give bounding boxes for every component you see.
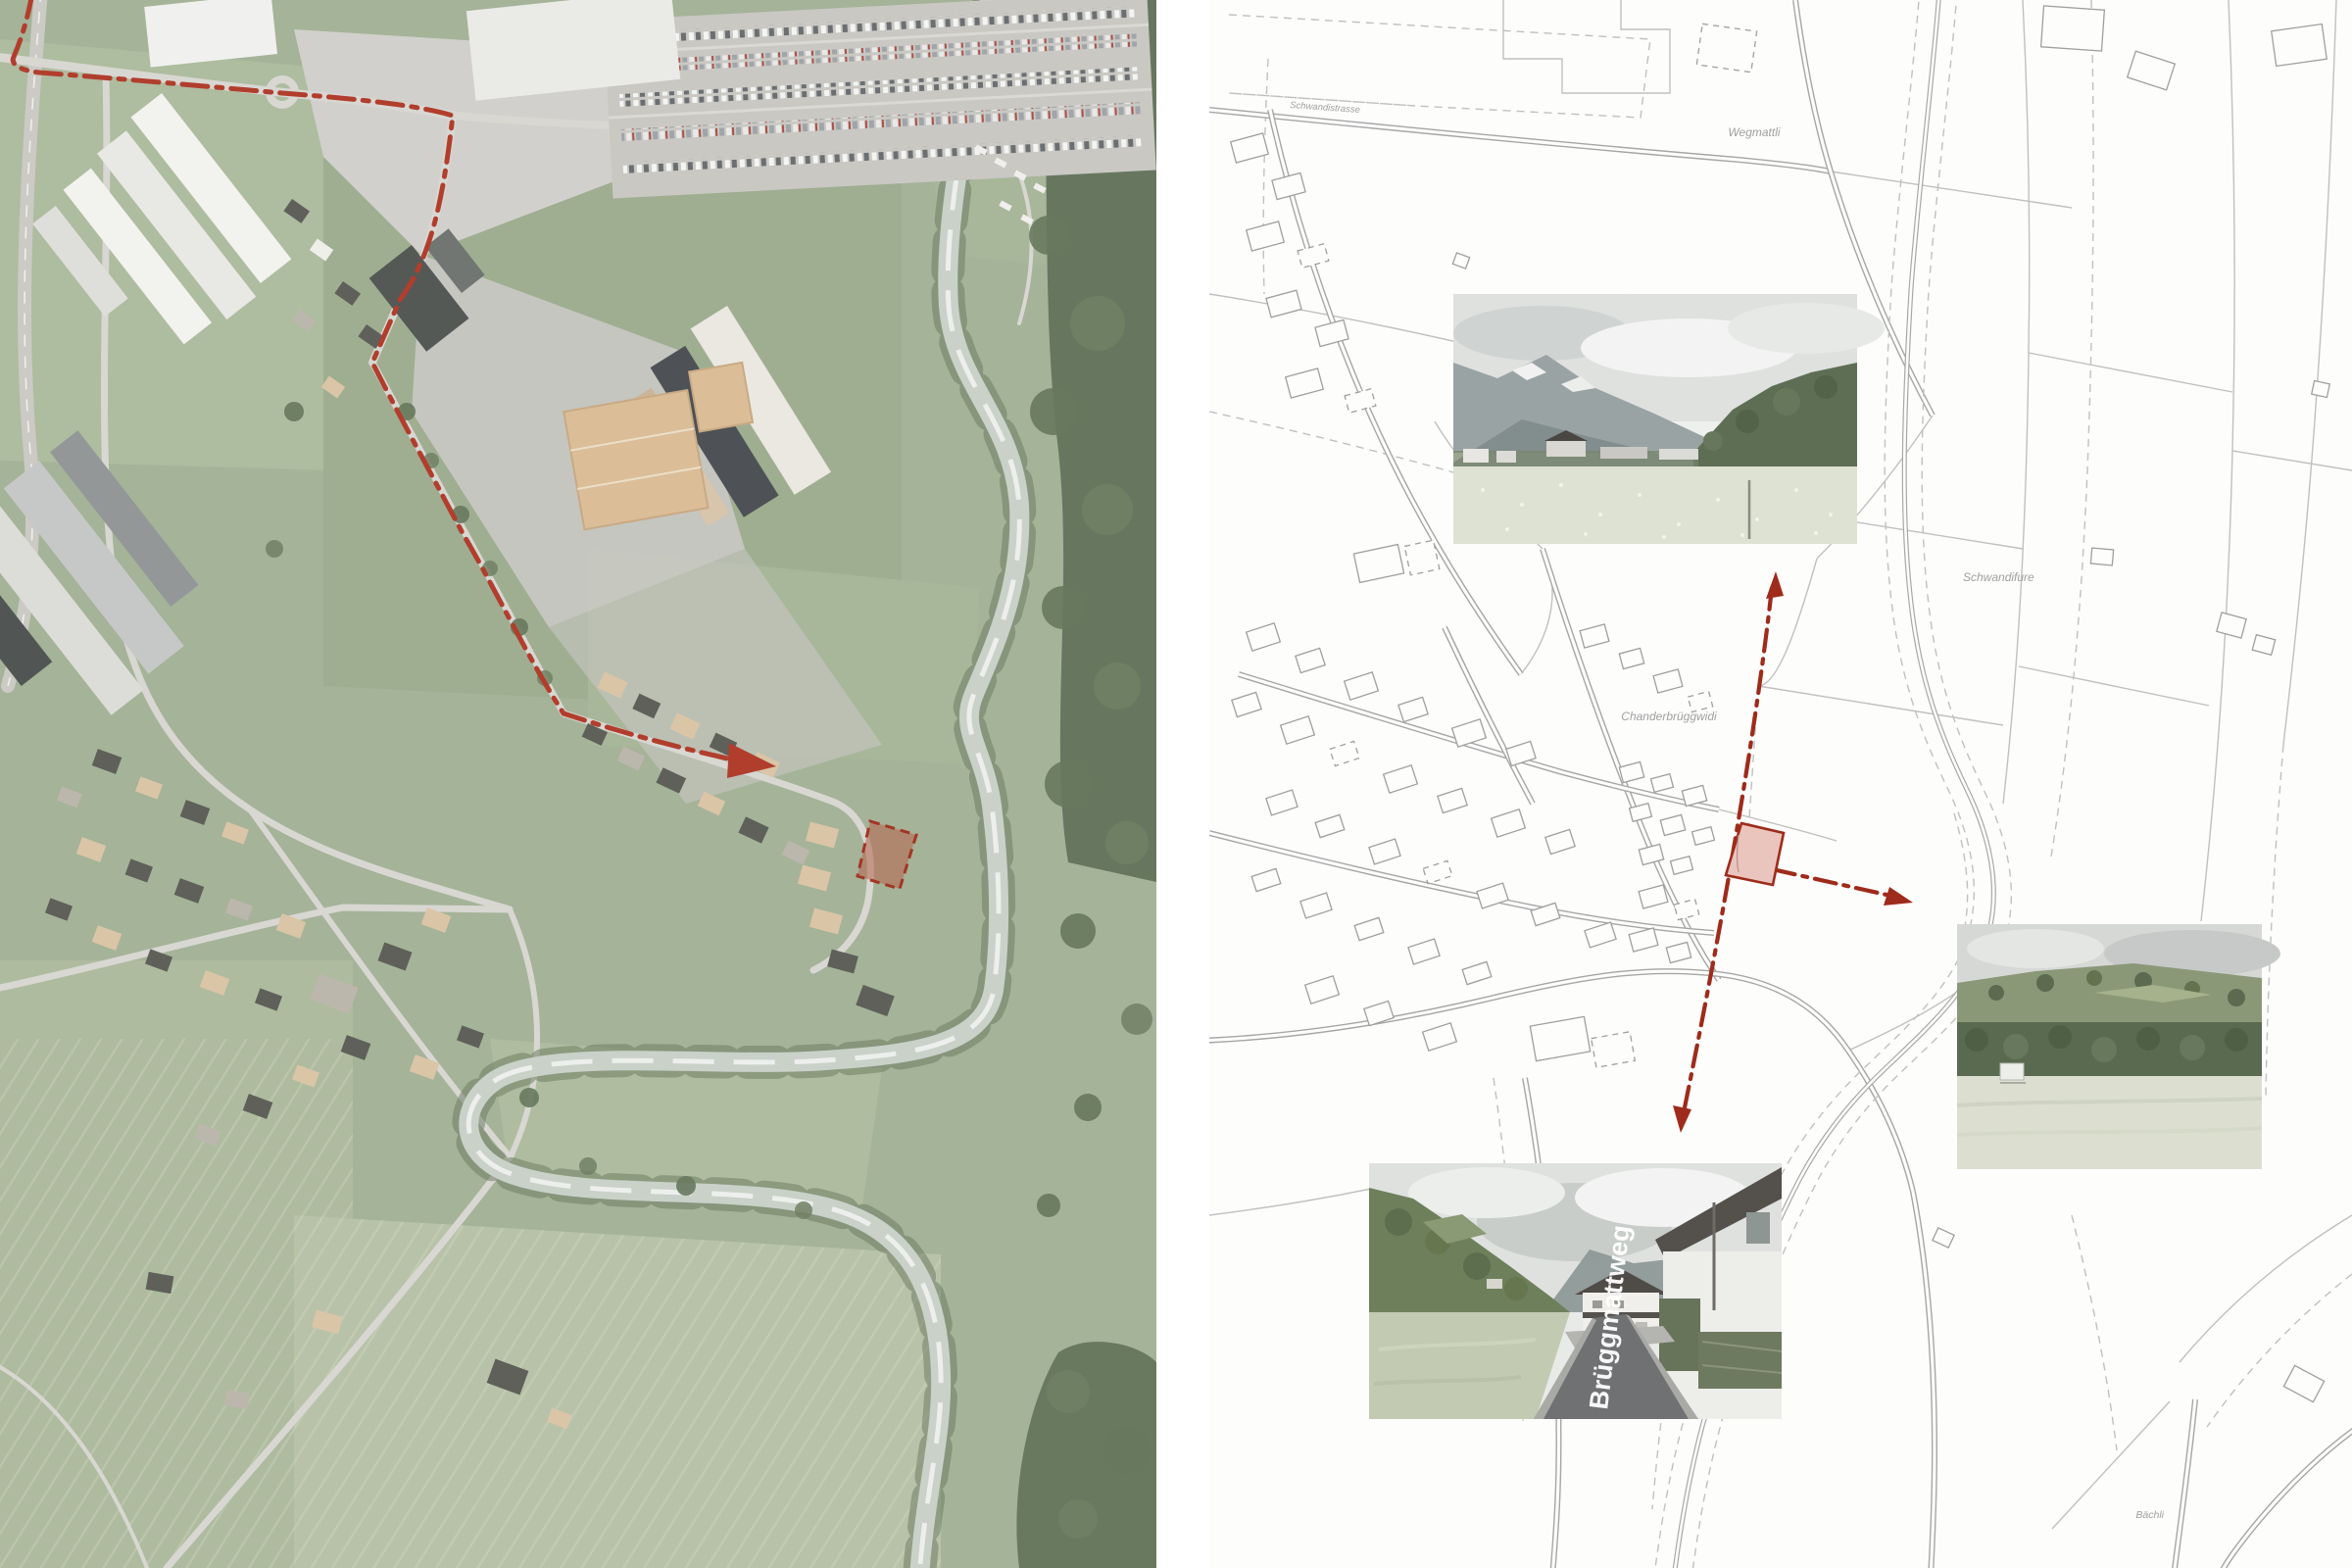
aerial-photo [0,0,1156,1568]
cadastral-map-panel: Brüggmattweg Wegmattli Schwandistrasse S… [1209,0,2352,1568]
aerial-photo-panel [0,0,1156,1568]
label-chanderbrueggwidi: Chanderbrüggwidi [1621,710,1717,723]
label-schwandifure: Schwandifure [1963,570,2034,584]
label-wegmattli: Wegmattli [1728,125,1780,139]
label-baechli: Bächli [2135,1509,2164,1521]
photo-inset-forest-field [1957,924,2280,1169]
photo-inset-meadow-panorama [1453,294,1885,544]
cadastral-map: Brüggmattweg Wegmattli Schwandistrasse S… [1209,0,2352,1568]
photo-inset-street-view: Brüggmattweg [1369,1163,1782,1419]
